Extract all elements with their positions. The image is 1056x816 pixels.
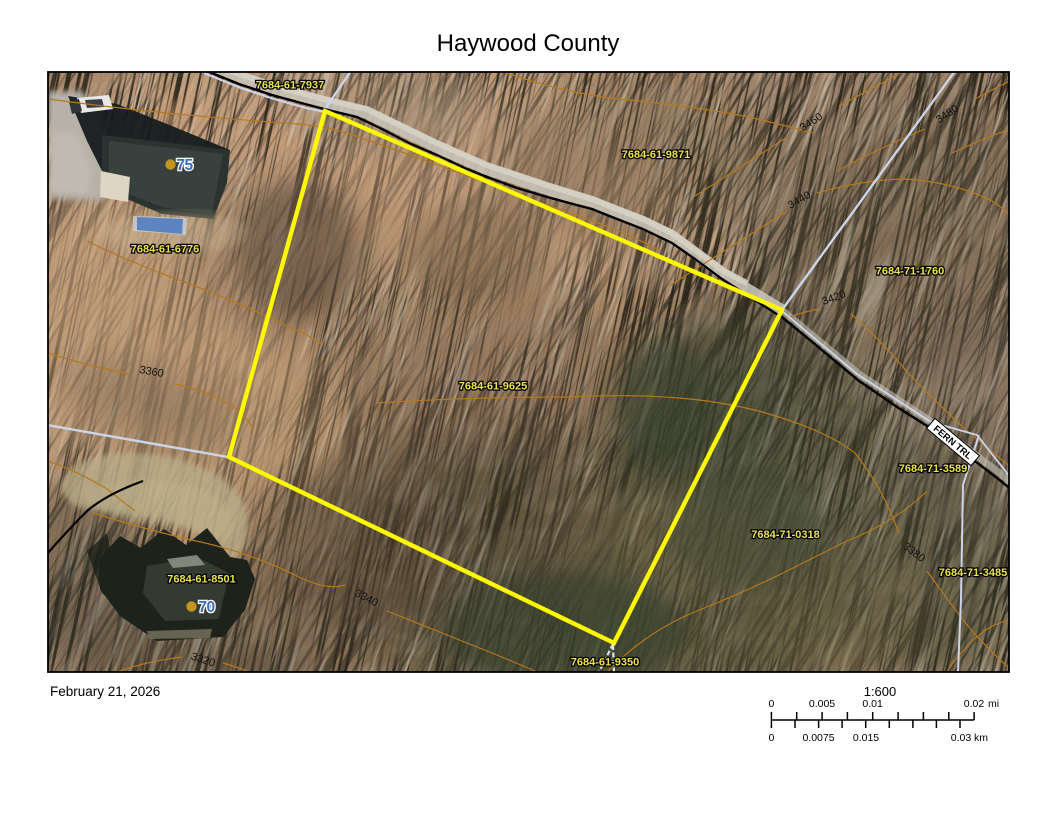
svg-text:7684-71-3485: 7684-71-3485 [939, 567, 1008, 579]
svg-text:7684-61-6776: 7684-61-6776 [131, 244, 200, 256]
svg-text:0.015: 0.015 [853, 732, 879, 744]
svg-text:7684-61-8501: 7684-61-8501 [167, 574, 236, 586]
svg-text:0.03: 0.03 [951, 732, 972, 744]
svg-text:7684-61-9350: 7684-61-9350 [571, 657, 640, 669]
svg-text:7684-71-3589: 7684-71-3589 [899, 463, 968, 475]
svg-text:7684-71-0318: 7684-71-0318 [751, 529, 820, 541]
svg-text:7684-61-9625: 7684-61-9625 [459, 381, 528, 393]
svg-text:7684-61-7937: 7684-61-7937 [256, 80, 325, 92]
svg-text:0: 0 [768, 732, 774, 744]
svg-text:0.005: 0.005 [809, 698, 835, 710]
svg-text:0.0075: 0.0075 [802, 732, 834, 744]
svg-text:70: 70 [198, 599, 214, 616]
svg-text:km: km [974, 732, 988, 744]
svg-text:0.01: 0.01 [862, 698, 883, 710]
svg-text:mi: mi [988, 698, 999, 710]
svg-text:7684-71-1760: 7684-71-1760 [876, 266, 945, 278]
svg-text:7684-61-9871: 7684-61-9871 [622, 149, 691, 161]
svg-text:0.02: 0.02 [964, 698, 985, 710]
svg-text:75: 75 [176, 157, 193, 174]
svg-text:0: 0 [768, 698, 774, 710]
